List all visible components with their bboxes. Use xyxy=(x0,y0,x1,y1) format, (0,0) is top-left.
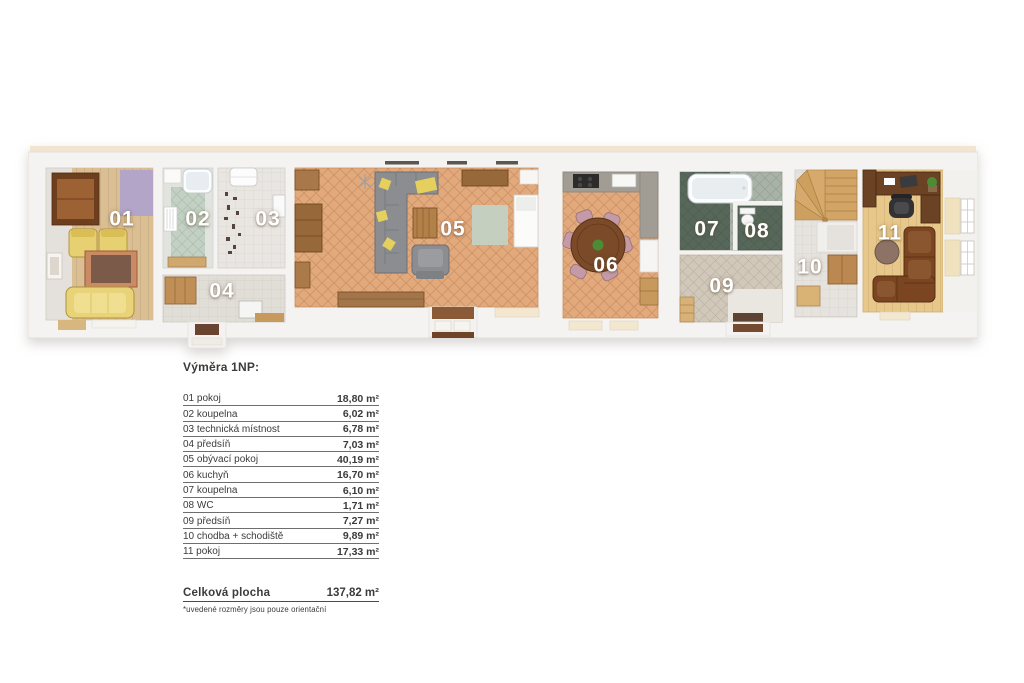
furniture-hall-cabinet xyxy=(828,255,857,284)
floor-plan-image xyxy=(28,145,978,355)
entry-vestibule xyxy=(429,307,477,338)
legend-row: 03 technická místnost 6,78 m² xyxy=(183,423,379,437)
legend-row: 11 pokoj 17,33 m² xyxy=(183,545,379,559)
legend-row: 09 předsíň 7,27 m² xyxy=(183,514,379,528)
floor-plan: 01 02 03 04 05 06 07 08 09 10 11 xyxy=(28,145,978,355)
window-2 xyxy=(945,240,974,276)
window-sill xyxy=(495,308,539,317)
room-area: 16,70 m² xyxy=(337,470,379,481)
room-label-04: 04 xyxy=(209,281,234,302)
furniture-fridge xyxy=(640,240,658,272)
furniture-chest xyxy=(797,286,820,306)
room-name: 11 pokoj xyxy=(183,547,220,557)
room-area: 7,27 m² xyxy=(343,516,379,527)
cooktop xyxy=(573,174,599,188)
legend-rows: 01 pokoj 18,80 m² 02 koupelna 6,02 m² 03… xyxy=(183,392,379,559)
room-area: 40,19 m² xyxy=(337,455,379,466)
room-label-06: 06 xyxy=(593,255,618,276)
sink xyxy=(612,174,636,187)
bath-bench xyxy=(168,257,206,267)
right-wall-windows xyxy=(943,170,977,312)
room-area: 6,78 m² xyxy=(343,424,379,435)
bath-shelf xyxy=(164,169,181,183)
total-label: Celková plocha xyxy=(183,587,270,599)
room-name: 10 chodba + schodiště xyxy=(183,532,283,542)
total-row: Celková plocha 137,82 m² xyxy=(183,587,379,602)
room-area: 7,03 m² xyxy=(343,440,379,451)
room-label-10: 10 xyxy=(797,257,822,278)
furniture-bench xyxy=(255,313,284,322)
room-name: 06 kuchyň xyxy=(183,471,229,481)
furniture-wardrobe xyxy=(165,277,196,304)
legend-row: 08 WC 1,71 m² xyxy=(183,499,379,513)
furniture-dresser xyxy=(52,173,99,225)
room-01 xyxy=(46,168,153,330)
page: 01 02 03 04 05 06 07 08 09 10 11 Výměra … xyxy=(0,0,1024,683)
total-area: 137,82 m² xyxy=(327,587,379,599)
legend-row: 07 koupelna 6,10 m² xyxy=(183,484,379,498)
room-label-03: 03 xyxy=(255,209,280,230)
room-name: 09 předsíň xyxy=(183,517,230,527)
plant xyxy=(593,240,604,251)
furniture-bookcase xyxy=(863,170,876,207)
room-label-09: 09 xyxy=(709,276,734,297)
room-11 xyxy=(863,170,943,320)
room-name: 01 pokoj xyxy=(183,394,221,404)
room-name: 03 technická místnost xyxy=(183,425,280,435)
furniture-coffee-table xyxy=(413,208,437,238)
furniture-radiator xyxy=(164,207,177,231)
window-marks xyxy=(385,161,518,165)
furniture-bathtub xyxy=(688,174,752,203)
room-name: 04 předsíň xyxy=(183,440,230,450)
room-label-11: 11 xyxy=(878,223,902,244)
legend-row: 10 chodba + schodiště 9,89 m² xyxy=(183,530,379,544)
area-legend: Výměra 1NP: 01 pokoj 18,80 m² 02 koupeln… xyxy=(183,360,379,614)
legend-row: 04 předsíň 7,03 m² xyxy=(183,438,379,452)
room-area: 1,71 m² xyxy=(343,501,379,512)
room-area: 6,02 m² xyxy=(343,409,379,420)
furniture-tv-board xyxy=(338,292,424,307)
room-label-01: 01 xyxy=(109,209,134,230)
door-step xyxy=(58,320,86,330)
desk-plant xyxy=(927,177,937,187)
furniture-sideboard xyxy=(462,170,508,186)
furniture-bed xyxy=(85,251,137,287)
legend-row: 01 pokoj 18,80 m² xyxy=(183,392,379,406)
legend-row: 02 koupelna 6,02 m² xyxy=(183,407,379,421)
legend-row: 06 kuchyň 16,70 m² xyxy=(183,468,379,482)
furniture-crates xyxy=(640,278,658,305)
room-name: 07 koupelna xyxy=(183,486,238,496)
room-area: 6,10 m² xyxy=(343,486,379,497)
room-area: 9,89 m² xyxy=(343,531,379,542)
laptop xyxy=(899,175,917,188)
stair-steps-small xyxy=(680,297,694,322)
legend-footnote: *uvedené rozměry jsou pouze orientační xyxy=(183,605,379,614)
furniture-armchair-gray xyxy=(412,245,449,279)
entry-door-09 xyxy=(726,322,770,336)
furniture-sofa-yellow xyxy=(66,287,134,318)
window-1 xyxy=(945,198,974,234)
furniture-bathtub-small xyxy=(183,169,212,193)
room-area: 18,80 m² xyxy=(337,394,379,405)
furniture-daybed-white xyxy=(514,195,538,247)
room-area: 17,33 m² xyxy=(337,547,379,558)
room-name: 08 WC xyxy=(183,501,214,511)
under-stair-closet xyxy=(817,222,857,252)
legend-title: Výměra 1NP: xyxy=(183,360,379,374)
room-label-02: 02 xyxy=(185,209,210,230)
room-label-08: 08 xyxy=(744,221,769,242)
furniture-staircase xyxy=(795,170,857,223)
room-label-05: 05 xyxy=(440,219,465,240)
furniture-water-heater xyxy=(230,168,257,186)
room-name: 02 koupelna xyxy=(183,410,238,420)
room-name: 05 obývací pokoj xyxy=(183,455,258,465)
door-mat xyxy=(733,313,763,323)
entry-door-04 xyxy=(188,322,226,348)
room-label-07: 07 xyxy=(694,219,719,240)
rug-sage xyxy=(472,205,508,245)
legend-row: 05 obývací pokoj 40,19 m² xyxy=(183,453,379,467)
room-06 xyxy=(562,172,658,330)
furniture-office-chair xyxy=(889,194,914,218)
room-10 xyxy=(795,170,857,317)
